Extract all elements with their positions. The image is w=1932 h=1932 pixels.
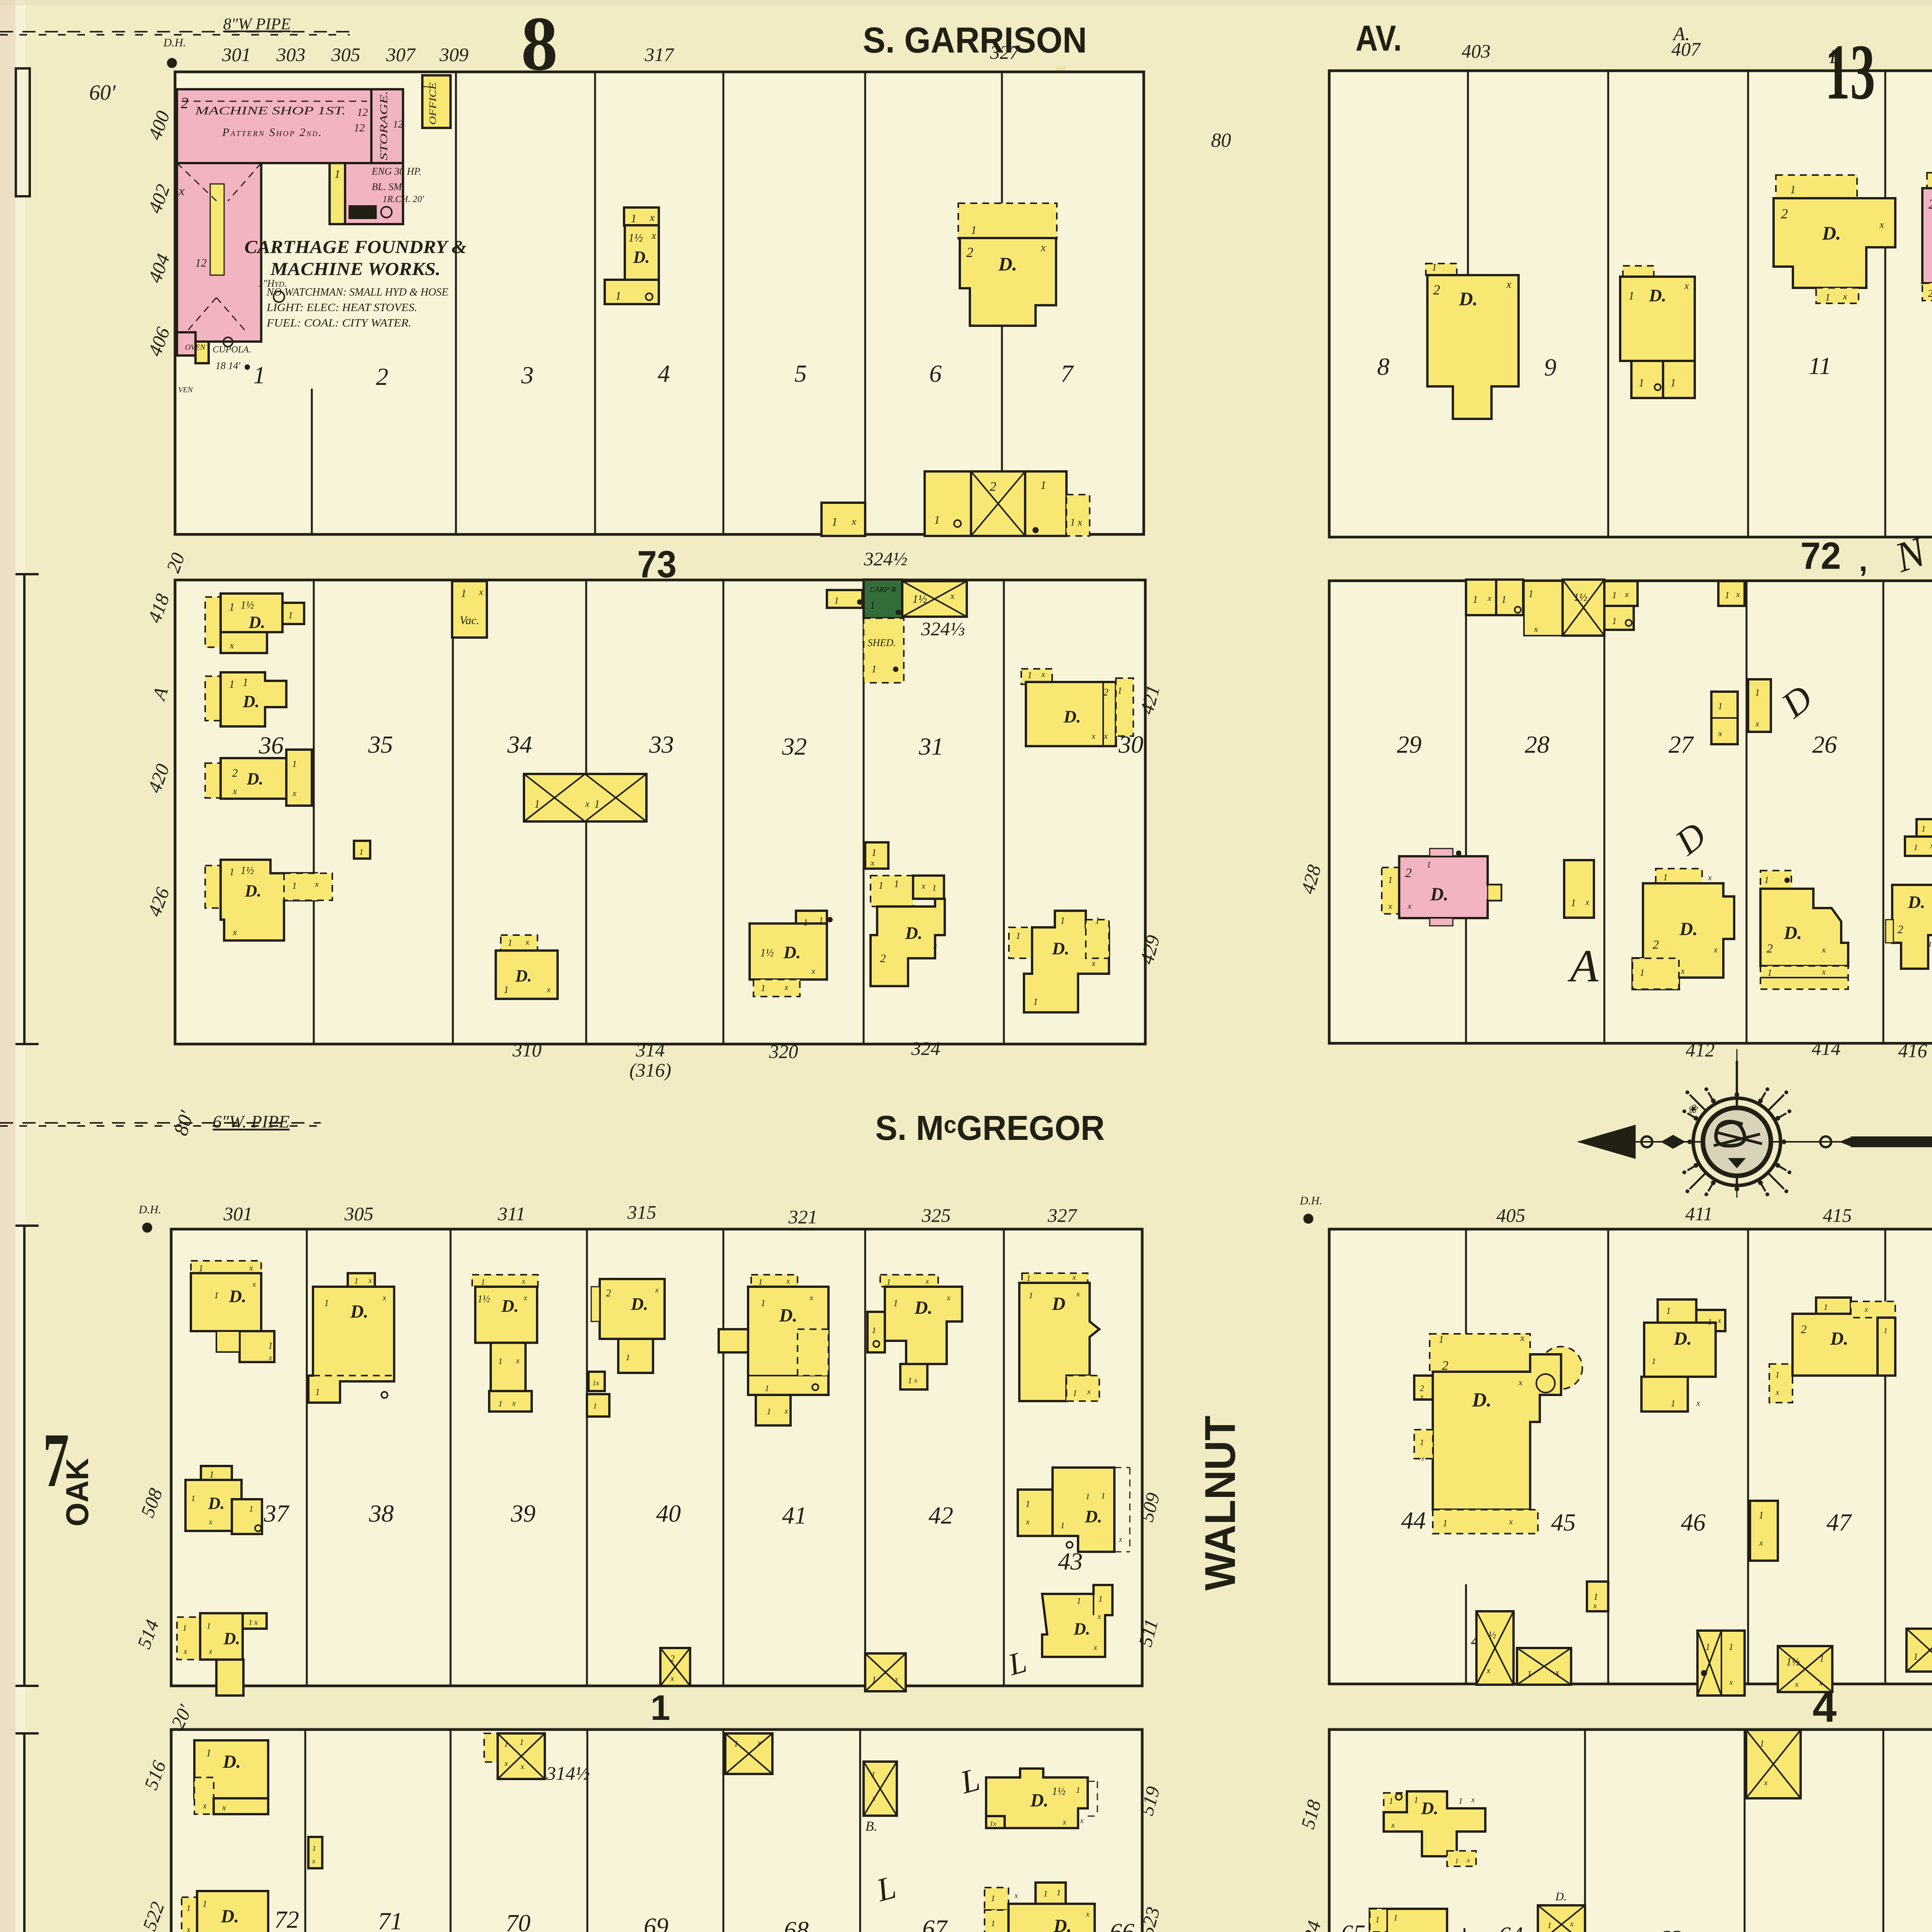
svg-text:1: 1 [991,1893,995,1903]
svg-text:1: 1 [1027,670,1032,680]
svg-text:7: 7 [1061,360,1074,387]
svg-text:CUPOLA.: CUPOLA. [213,345,251,355]
svg-text:12: 12 [354,122,365,134]
svg-text:x: x [1585,897,1589,907]
svg-text:13: 13 [1825,28,1875,116]
svg-text:LIGHT: ELEC: HEAT STOVES.: LIGHT: ELEC: HEAT STOVES. [266,302,417,314]
svg-text:2: 2 [1898,923,1903,936]
svg-text:ENG 30 HP.: ENG 30 HP. [371,166,422,177]
svg-text:1: 1 [971,224,977,236]
svg-text:40: 40 [656,1500,681,1527]
svg-text:1: 1 [1060,916,1065,926]
svg-text:8: 8 [1377,353,1389,380]
svg-text:12: 12 [195,257,207,269]
svg-text:1: 1 [872,1325,876,1335]
svg-text:1: 1 [1824,1302,1828,1312]
svg-text:2: 2 [1767,941,1773,955]
svg-text:1: 1 [520,1737,524,1747]
svg-text:D.: D. [1030,1790,1049,1811]
svg-text:8: 8 [521,1,558,87]
svg-text:D.: D. [1053,1916,1072,1932]
svg-text:2: 2 [1405,866,1412,880]
svg-text:1: 1 [1376,1915,1380,1924]
svg-text:28: 28 [1525,731,1549,758]
svg-text:403: 403 [1462,40,1491,62]
svg-text:x: x [1420,1393,1423,1400]
svg-text:1 x: 1 x [248,1618,258,1627]
svg-text:1: 1 [834,596,839,606]
svg-text:x: x [209,1518,213,1526]
svg-text:x: x [895,1675,898,1684]
svg-text:411: 411 [1685,1203,1713,1225]
svg-text:1: 1 [1073,1388,1077,1398]
svg-text:317: 317 [645,44,675,65]
svg-text:65: 65 [1341,1920,1366,1932]
svg-text:1: 1 [1502,594,1507,605]
svg-text:46: 46 [1681,1509,1706,1536]
svg-text:1: 1 [335,168,340,180]
svg-text:1: 1 [819,916,823,926]
svg-text:1: 1 [1439,1334,1444,1345]
svg-text:1: 1 [191,1493,196,1503]
svg-text:1: 1 [1029,1291,1033,1300]
svg-text:2: 2 [966,245,973,260]
svg-text:D.: D. [1430,884,1449,905]
svg-text:D.H.: D.H. [138,1203,161,1216]
svg-text:1: 1 [1459,1796,1463,1806]
svg-text:x: x [1388,901,1392,911]
svg-text:1: 1 [354,1276,359,1286]
svg-text:1: 1 [1527,1669,1532,1679]
svg-text:1: 1 [761,1298,765,1308]
svg-text:D.: D. [1459,288,1478,310]
svg-text:73: 73 [637,543,677,585]
svg-text:6″W. PIPE: 6″W. PIPE [213,1112,290,1131]
svg-text:415: 415 [1823,1204,1852,1226]
svg-text:x: x [1014,1891,1018,1900]
svg-text:x: x [1063,1818,1066,1827]
svg-text:D.: D. [208,1494,225,1513]
svg-text:1: 1 [1928,940,1932,949]
svg-text:x: x [914,1376,917,1384]
svg-text:26: 26 [1812,731,1837,758]
svg-text:1½: 1½ [912,593,927,605]
svg-text:x: x [1684,280,1689,291]
svg-text:x: x [1080,1816,1084,1825]
svg-text:1: 1 [1117,686,1122,696]
svg-text:x: x [1708,872,1712,882]
svg-text:1: 1 [1820,1654,1824,1664]
svg-text:18 14′: 18 14′ [216,360,241,371]
svg-text:x: x [230,641,234,651]
svg-text:47: 47 [1827,1509,1852,1536]
svg-text:x: x [870,858,874,867]
svg-text:x: x [1091,731,1095,741]
svg-text:x: x [1696,1398,1700,1408]
svg-text:1: 1 [894,878,899,889]
svg-text:1: 1 [1670,377,1676,389]
svg-text:2: 2 [880,952,886,965]
svg-text:29: 29 [1397,731,1422,758]
svg-text:x: x [504,1759,508,1768]
svg-text:D.: D. [501,1296,519,1316]
svg-text:1½: 1½ [1786,1656,1800,1668]
svg-text:320: 320 [769,1041,798,1062]
svg-text:1: 1 [292,759,297,769]
svg-text:1: 1 [1061,1520,1065,1530]
svg-text:1½: 1½ [628,231,643,244]
svg-text:305: 305 [331,44,361,65]
svg-text:D.: D. [633,248,650,267]
svg-text:½: ½ [1488,1629,1496,1641]
svg-text:MACHINE WORKS.: MACHINE WORKS. [270,259,440,279]
svg-text:1: 1 [1639,377,1644,389]
svg-text:x: x [249,1263,253,1272]
svg-text:D.: D. [1472,1389,1492,1411]
svg-text:1: 1 [1629,289,1634,302]
svg-text:Vac.: Vac. [460,614,480,627]
svg-text:1½: 1½ [1052,1786,1066,1798]
svg-text:x: x [1879,219,1884,230]
svg-text:1: 1 [893,1298,898,1308]
svg-text:1: 1 [908,1376,912,1385]
svg-text:1x: 1x [990,1820,997,1827]
svg-text:x: x [1718,728,1722,738]
svg-text:2: 2 [1442,1359,1449,1373]
svg-text:D.: D. [1649,286,1667,305]
svg-text:1: 1 [1027,1273,1031,1283]
svg-text:67: 67 [922,1915,948,1932]
svg-text:x: x [655,1286,659,1294]
svg-text:x: x [950,591,955,601]
svg-text:1: 1 [1884,1327,1888,1335]
svg-text:2: 2 [670,1654,675,1664]
svg-text:1: 1 [1767,968,1772,978]
svg-text:x: x [651,230,656,241]
svg-text:1: 1 [288,611,293,621]
svg-text:314: 314 [636,1039,665,1061]
svg-text:x: x [1713,945,1718,954]
svg-text:x: x [1486,1665,1490,1675]
svg-text:1: 1 [1388,875,1393,885]
svg-text:1: 1 [932,883,937,893]
svg-text:2: 2 [1781,206,1788,221]
svg-text:1: 1 [1671,1399,1675,1409]
svg-text:D.: D. [779,1305,798,1326]
svg-text:1: 1 [1764,875,1769,885]
svg-text:x: x [1104,731,1108,741]
svg-text:327: 327 [990,41,1020,63]
svg-text:309: 309 [439,44,469,65]
svg-text:x: x [1421,1454,1424,1462]
svg-text:D.: D. [1673,1328,1692,1349]
svg-text:x: x [479,587,483,597]
svg-text:B: B [1830,46,1842,67]
svg-text:2: 2 [1420,1383,1424,1393]
svg-text:1: 1 [1755,688,1760,698]
svg-text:x: x [1091,958,1095,968]
svg-text:1: 1 [206,1747,211,1759]
svg-text:1: 1 [832,515,838,528]
svg-text:1: 1 [229,679,235,690]
svg-text:x: x [1755,719,1759,728]
svg-text:x: x [947,1294,951,1302]
svg-text:x: x [933,941,937,951]
svg-text:(316): (316) [629,1059,671,1081]
svg-text:x: x [516,1357,520,1365]
svg-text:x: x [1094,1643,1097,1652]
svg-text:1: 1 [1101,1491,1105,1500]
svg-text:62: 62 [1807,1929,1832,1932]
svg-text:6: 6 [929,360,942,387]
svg-text:1: 1 [202,1899,207,1909]
svg-text:2 x: 2 x [1928,288,1932,299]
svg-text:SHED.: SHED. [868,637,896,648]
svg-text:x: x [1570,1920,1574,1928]
svg-text:D.: D. [223,1752,241,1772]
svg-text:x: x [233,786,237,796]
svg-text:WALNUT: WALNUT [1196,1416,1244,1591]
svg-text:CARP’R: CARP’R [870,585,896,594]
svg-text:2: 2 [232,767,238,779]
svg-text:7: 7 [43,1418,69,1503]
svg-text:1½: 1½ [760,947,774,959]
svg-text:A: A [1567,940,1599,992]
svg-text:60′: 60′ [89,81,116,105]
svg-text:S. GARRISON: S. GARRISON [863,20,1087,60]
svg-text:BL. SM.: BL. SM. [372,181,405,192]
svg-text:315: 315 [627,1201,656,1223]
svg-text:27: 27 [1668,731,1694,758]
svg-text:x: x [1391,1821,1395,1830]
svg-text:x: x [810,1294,813,1302]
svg-text:x: x [786,1277,790,1286]
svg-text:11: 11 [1808,352,1831,379]
svg-text:x: x [1555,1667,1559,1677]
svg-text:1: 1 [1455,1857,1459,1865]
svg-text:x: x [1509,1517,1513,1526]
svg-text:305: 305 [344,1203,374,1225]
svg-text:41: 41 [782,1502,807,1529]
svg-text:1: 1 [534,798,540,810]
svg-text:2: 2 [1433,282,1440,298]
svg-text:D.: D. [1784,923,1802,943]
svg-text:1: 1 [1708,1317,1712,1327]
svg-text:D.H.: D.H. [1299,1194,1322,1207]
svg-text:x: x [1097,1612,1101,1621]
svg-text:1: 1 [1389,1796,1393,1806]
svg-text:1: 1 [1095,916,1100,926]
svg-text:x: x [1843,292,1847,302]
svg-text:x: x [368,1276,372,1285]
svg-text:x: x [1026,1518,1030,1526]
svg-text:x: x [1864,1305,1868,1314]
svg-text:1: 1 [879,880,884,891]
svg-text:1: 1 [1099,1594,1103,1604]
svg-text:9: 9 [1544,354,1556,381]
svg-text:x: x [1718,1316,1721,1325]
svg-text:1: 1 [312,1844,316,1853]
svg-text:x: x [209,1647,213,1656]
svg-text:1: 1 [803,918,808,928]
svg-text:1: 1 [1420,1437,1424,1447]
svg-text:31: 31 [918,733,944,760]
svg-text:x: x [1407,901,1412,911]
svg-text:1½: 1½ [241,865,254,877]
svg-text:x: x [1759,1538,1763,1548]
svg-text:1: 1 [243,677,248,689]
svg-text:1: 1 [229,601,235,613]
svg-text:324: 324 [911,1037,940,1059]
svg-text:1: 1 [1033,997,1038,1007]
svg-text:70: 70 [506,1909,531,1932]
svg-text:1: 1 [1612,616,1617,626]
svg-text:1: 1 [1041,479,1046,492]
svg-text:x: x [1466,1856,1470,1864]
svg-text:1: 1 [481,1277,485,1287]
svg-text:1: 1 [593,1402,597,1410]
svg-text:1: 1 [1026,1499,1030,1509]
svg-text:x: x [1506,279,1512,291]
svg-text:2: 2 [1929,196,1932,212]
svg-text:B.: B. [866,1818,878,1834]
svg-text:D.: D. [905,923,923,943]
svg-text:1: 1 [734,1739,738,1748]
svg-text:VEN: VEN [178,386,193,394]
svg-text:1: 1 [249,1504,253,1514]
svg-text:D.: D. [1085,1507,1102,1526]
svg-text:1: 1 [1760,1739,1764,1749]
svg-text:1 x: 1 x [1070,517,1082,528]
svg-text:D.: D. [1679,919,1698,939]
svg-text:D.: D. [350,1301,369,1322]
svg-text:x: x [757,1738,761,1747]
svg-text:1½: 1½ [478,1293,490,1304]
svg-text:412: 412 [1686,1039,1715,1061]
svg-text:1: 1 [759,1277,763,1287]
svg-text:303: 303 [276,44,306,65]
svg-text:1: 1 [1913,1652,1918,1662]
svg-text:1: 1 [187,1903,191,1913]
svg-text:4: 4 [658,360,670,387]
svg-text:x: x [811,966,815,976]
svg-text:D.: D. [1555,1890,1566,1903]
svg-text:1: 1 [292,881,297,891]
svg-text:D.: D. [515,966,532,985]
svg-text:1: 1 [1759,1510,1764,1521]
svg-text:x: x [1076,1290,1080,1298]
svg-text:1: 1 [631,212,637,225]
svg-text:D.: D. [914,1298,933,1318]
svg-text:1: 1 [761,983,765,993]
svg-text:2: 2 [1801,1323,1807,1336]
svg-text:x: x [1119,1535,1122,1544]
svg-text:x: x [1729,1678,1733,1687]
svg-text:x: x [1821,945,1826,954]
svg-text:1: 1 [1594,1592,1598,1602]
svg-text:OVEN: OVEN [185,343,206,352]
svg-text:D.: D. [1073,1619,1090,1638]
svg-text:1: 1 [767,1406,771,1416]
svg-text:324½: 324½ [864,548,908,570]
svg-text:1: 1 [1922,824,1926,833]
svg-text:1: 1 [991,1918,995,1928]
svg-text:2: 2 [181,94,189,112]
svg-text:1: 1 [1427,860,1431,869]
svg-text:1: 1 [1044,1889,1048,1898]
svg-text:324⅓: 324⅓ [921,618,965,639]
svg-text:301: 301 [223,1203,253,1225]
svg-text:1: 1 [870,600,875,611]
svg-text:x: x [1471,1796,1475,1804]
svg-text:1: 1 [504,1739,509,1748]
svg-text:12: 12 [393,119,403,130]
svg-text:D.: D. [783,942,801,962]
svg-text:x: x [1087,1388,1091,1396]
svg-text:2: 2 [1104,687,1109,698]
svg-text:1: 1 [1825,292,1830,303]
svg-text:x: x [1624,589,1629,599]
svg-text:1: 1 [268,1341,273,1351]
svg-text:1: 1 [199,1264,203,1274]
svg-text:x: x [1518,1378,1522,1387]
svg-text:x: x [1086,1910,1090,1918]
svg-text:1: 1 [1057,1888,1061,1897]
svg-text:307: 307 [386,44,416,65]
svg-text:5: 5 [794,360,807,387]
svg-text:3: 3 [521,361,534,389]
svg-text:1: 1 [1640,968,1645,978]
svg-text:D.: D. [248,613,265,632]
svg-text:1: 1 [461,588,466,600]
svg-text:33: 33 [649,731,674,758]
svg-text:1: 1 [650,1688,670,1728]
svg-text:x: x [222,1803,226,1812]
svg-text:39: 39 [510,1500,536,1527]
svg-text:1: 1 [1725,590,1730,600]
svg-text:1½: 1½ [1574,592,1587,604]
svg-text:63: 63 [1658,1925,1683,1932]
svg-text:1: 1 [1016,931,1020,941]
svg-text:1: 1 [934,514,940,526]
svg-text:x: x [784,1407,788,1415]
svg-text:x: x [1520,1333,1525,1343]
svg-text:x: x [512,1399,516,1408]
svg-text:D.: D. [1830,1328,1849,1349]
svg-text:x: x [1680,966,1685,976]
svg-text:x: x [292,788,296,798]
svg-text:1: 1 [315,1387,320,1397]
svg-text:x: x [525,937,529,947]
svg-text:2: 2 [990,480,997,494]
svg-text:1: 1 [871,1770,876,1779]
svg-text:x: x [233,927,237,937]
svg-text:1: 1 [616,289,621,302]
svg-text:1½: 1½ [241,599,254,611]
svg-text:69: 69 [644,1913,668,1932]
svg-text:x: x [851,516,856,527]
svg-text:1: 1 [1666,1306,1671,1316]
svg-text:AV.: AV. [1355,18,1402,58]
svg-text:1: 1 [1394,1913,1398,1922]
svg-text:301: 301 [222,44,251,65]
svg-text:❀: ❀ [1687,1103,1698,1116]
svg-text:8″W PIPE: 8″W PIPE [223,15,291,33]
svg-text:x: x [524,1294,527,1302]
svg-text:327: 327 [1048,1204,1078,1226]
svg-text:D.: D. [245,881,262,900]
svg-text:1: 1 [594,798,600,810]
